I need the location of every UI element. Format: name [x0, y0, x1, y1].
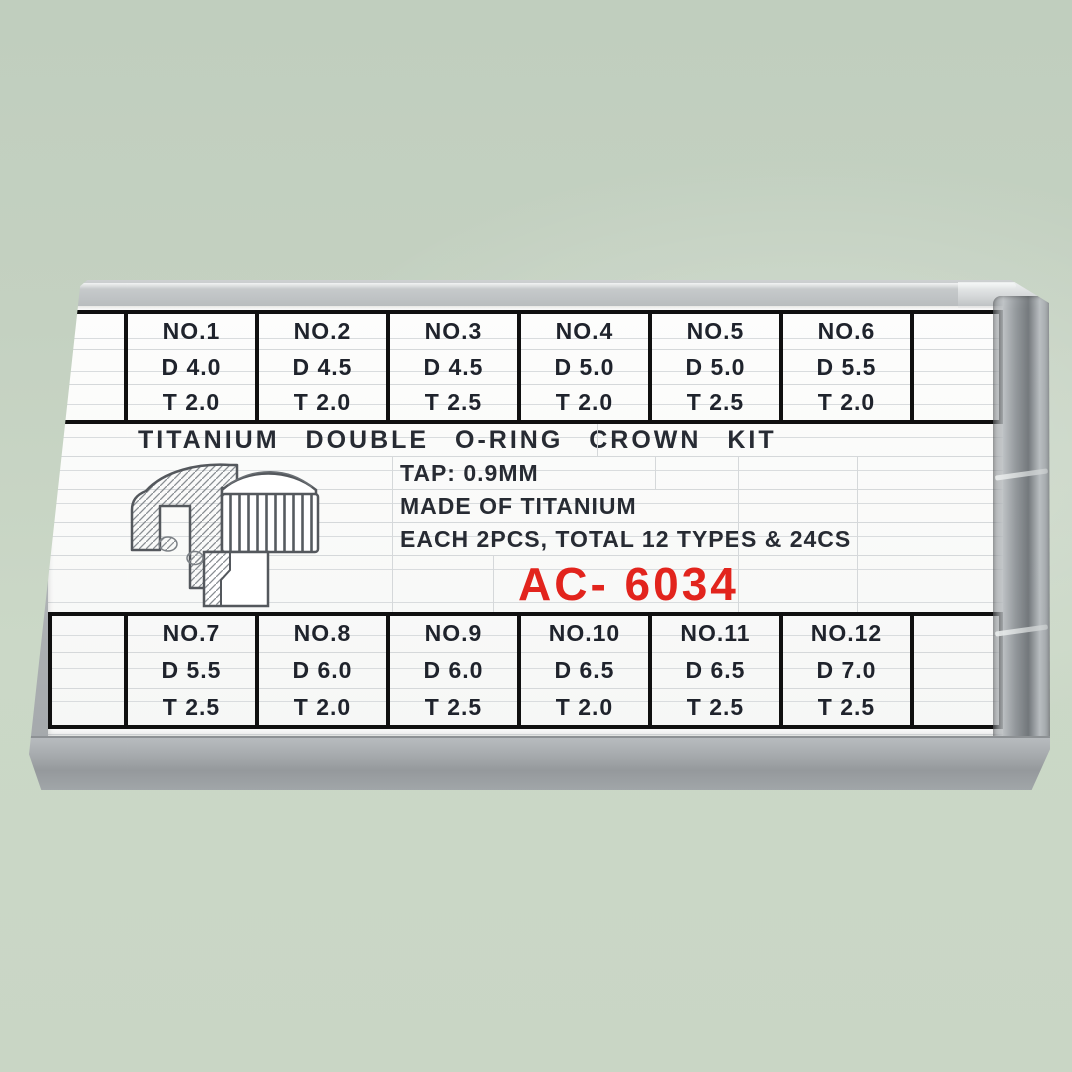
grid-line: [738, 457, 739, 612]
cell-d: D 6.0: [390, 653, 517, 690]
cell-no: NO.11: [652, 616, 779, 653]
hinge-notch: [995, 624, 1048, 636]
grid-line: [857, 457, 858, 612]
cell-t: T 2.5: [783, 689, 910, 725]
table-cell-no1: NO.1 D 4.0 T 2.0: [124, 314, 255, 420]
cell-no: NO.10: [521, 616, 648, 653]
cell-d: D 5.5: [783, 350, 910, 386]
cell-no: NO.4: [521, 314, 648, 350]
table-cell-no3: NO.3 D 4.5 T 2.5: [386, 314, 517, 420]
grid-line: [493, 556, 494, 612]
cell-t: T 2.5: [128, 689, 255, 725]
size-table-bottom: NO.7 D 5.5 T 2.5 NO.8 D 6.0 T 2.0 NO.9 D…: [48, 612, 1003, 729]
case-bottom-edge: [28, 736, 1050, 792]
size-table-top: NO.1 D 4.0 T 2.0 NO.2 D 4.5 T 2.0 NO.3 D…: [48, 310, 1003, 424]
cell-t: T 2.5: [390, 385, 517, 420]
cell-no: NO.12: [783, 616, 910, 653]
cell-d: D 6.0: [259, 653, 386, 690]
table-cell-no2: NO.2 D 4.5 T 2.0: [255, 314, 386, 420]
grid-line: [597, 424, 598, 457]
table-cell-no8: NO.8 D 6.0 T 2.0: [255, 616, 386, 725]
table-cell-no11: NO.11 D 6.5 T 2.5: [648, 616, 779, 725]
cell-d: D 6.5: [521, 653, 648, 690]
cell-d: D 5.0: [521, 350, 648, 386]
table-cell-empty: [52, 616, 124, 725]
table-cell-no10: NO.10 D 6.5 T 2.0: [517, 616, 648, 725]
product-info-band: TITANIUM DOUBLE O-RING CROWN KIT TAP: 0.…: [48, 424, 1003, 612]
clear-lid-hinge: [993, 296, 1050, 770]
product-title: TITANIUM DOUBLE O-RING CROWN KIT: [48, 424, 1003, 457]
cell-d: D 4.0: [128, 350, 255, 386]
cell-t: T 2.0: [521, 385, 648, 420]
cell-t: T 2.0: [259, 689, 386, 725]
plastic-parts-case: NO.1 D 4.0 T 2.0 NO.2 D 4.5 T 2.0 NO.3 D…: [28, 280, 1050, 790]
table-cell-empty: [910, 616, 999, 725]
table-cell-empty: [910, 314, 999, 420]
cell-no: NO.9: [390, 616, 517, 653]
cell-no: NO.1: [128, 314, 255, 350]
hinge-notch: [995, 468, 1048, 480]
cell-d: D 6.5: [652, 653, 779, 690]
table-cell-empty: [52, 314, 124, 420]
cell-t: T 2.5: [390, 689, 517, 725]
cell-no: NO.6: [783, 314, 910, 350]
cell-t: T 2.5: [652, 689, 779, 725]
cell-t: T 2.0: [128, 385, 255, 420]
cell-no: NO.7: [128, 616, 255, 653]
table-cell-no9: NO.9 D 6.0 T 2.5: [386, 616, 517, 725]
cell-d: D 4.5: [259, 350, 386, 386]
cell-no: NO.3: [390, 314, 517, 350]
table-cell-no4: NO.4 D 5.0 T 2.0: [517, 314, 648, 420]
cell-no: NO.5: [652, 314, 779, 350]
cell-t: T 2.0: [259, 385, 386, 420]
product-photo-scene: NO.1 D 4.0 T 2.0 NO.2 D 4.5 T 2.0 NO.3 D…: [0, 0, 1072, 1072]
table-cell-no12: NO.12 D 7.0 T 2.5: [779, 616, 910, 725]
cell-t: T 2.0: [783, 385, 910, 420]
case-top-highlight: [76, 283, 1016, 289]
cell-no: NO.2: [259, 314, 386, 350]
cell-d: D 7.0: [783, 653, 910, 690]
cell-no: NO.8: [259, 616, 386, 653]
cell-d: D 5.0: [652, 350, 779, 386]
cell-d: D 5.5: [128, 653, 255, 690]
grid-line: [655, 457, 656, 490]
table-cell-no6: NO.6 D 5.5 T 2.0: [779, 314, 910, 420]
table-cell-no5: NO.5 D 5.0 T 2.5: [648, 314, 779, 420]
model-number: AC- 6034: [518, 557, 739, 611]
table-cell-no7: NO.7 D 5.5 T 2.5: [124, 616, 255, 725]
size-chart-label: NO.1 D 4.0 T 2.0 NO.2 D 4.5 T 2.0 NO.3 D…: [48, 306, 1003, 736]
cell-t: T 2.5: [652, 385, 779, 420]
grid-line: [392, 457, 393, 612]
cell-t: T 2.0: [521, 689, 648, 725]
cell-d: D 4.5: [390, 350, 517, 386]
crown-cross-section-diagram-icon: [118, 458, 324, 610]
